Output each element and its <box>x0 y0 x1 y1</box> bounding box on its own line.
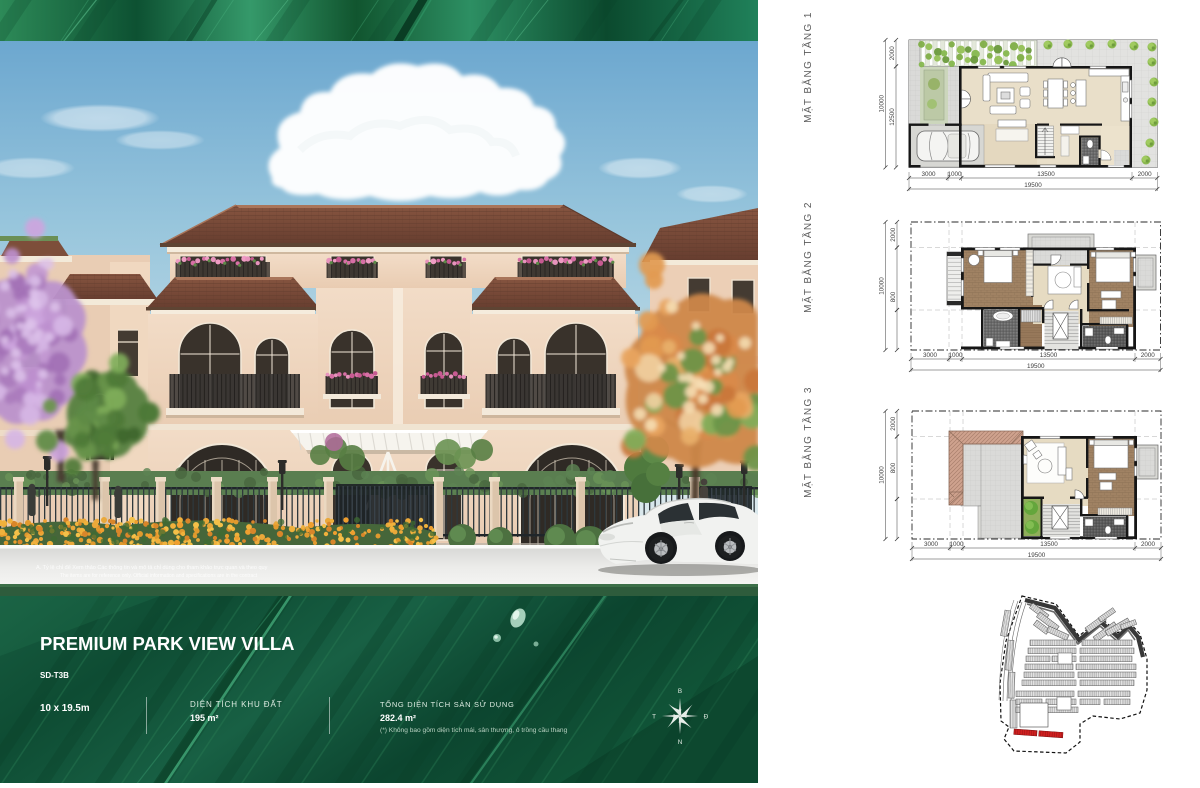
svg-text:1000: 1000 <box>949 541 964 548</box>
svg-text:The items are for reference on: The items are for reference only. Offici… <box>60 573 258 579</box>
svg-text:13500: 13500 <box>1037 171 1055 178</box>
svg-text:2000: 2000 <box>890 227 897 242</box>
svg-text:1000: 1000 <box>948 352 963 359</box>
svg-text:800: 800 <box>890 462 897 473</box>
svg-text:12500: 12500 <box>889 108 896 126</box>
svg-text:MẶT BẰNG TẦNG 2: MẶT BẰNG TẦNG 2 <box>801 201 814 313</box>
svg-text:MẶT BẰNG TẦNG 1: MẶT BẰNG TẦNG 1 <box>801 11 814 123</box>
svg-text:3000: 3000 <box>923 352 938 359</box>
svg-text:3000: 3000 <box>921 171 936 178</box>
svg-text:2000: 2000 <box>889 46 896 61</box>
svg-text:B: B <box>678 688 682 695</box>
svg-text:800: 800 <box>890 291 897 302</box>
svg-text:10000: 10000 <box>879 277 886 295</box>
svg-text:2000: 2000 <box>1141 541 1156 548</box>
svg-text:10000: 10000 <box>879 94 886 112</box>
svg-text:2000: 2000 <box>890 416 897 431</box>
svg-text:3000: 3000 <box>924 541 939 548</box>
svg-text:19500: 19500 <box>1024 182 1042 189</box>
svg-text:Đ: Đ <box>704 713 709 720</box>
svg-text:1000: 1000 <box>947 171 962 178</box>
svg-text:T: T <box>652 713 656 720</box>
svg-text:MẶT BẰNG TẦNG 3: MẶT BẰNG TẦNG 3 <box>801 386 814 498</box>
svg-text:13500: 13500 <box>1040 541 1058 548</box>
svg-text:2000: 2000 <box>1138 171 1153 178</box>
svg-text:19500: 19500 <box>1028 552 1046 559</box>
svg-text:N: N <box>678 739 683 746</box>
svg-text:2000: 2000 <box>1141 352 1156 359</box>
svg-text:A. Tỷ lệ chỉ để Xem thảo Các t: A. Tỷ lệ chỉ để Xem thảo Các thông tin v… <box>36 564 268 571</box>
svg-text:13500: 13500 <box>1040 352 1058 359</box>
svg-text:10000: 10000 <box>879 466 886 484</box>
svg-text:19500: 19500 <box>1027 363 1045 370</box>
